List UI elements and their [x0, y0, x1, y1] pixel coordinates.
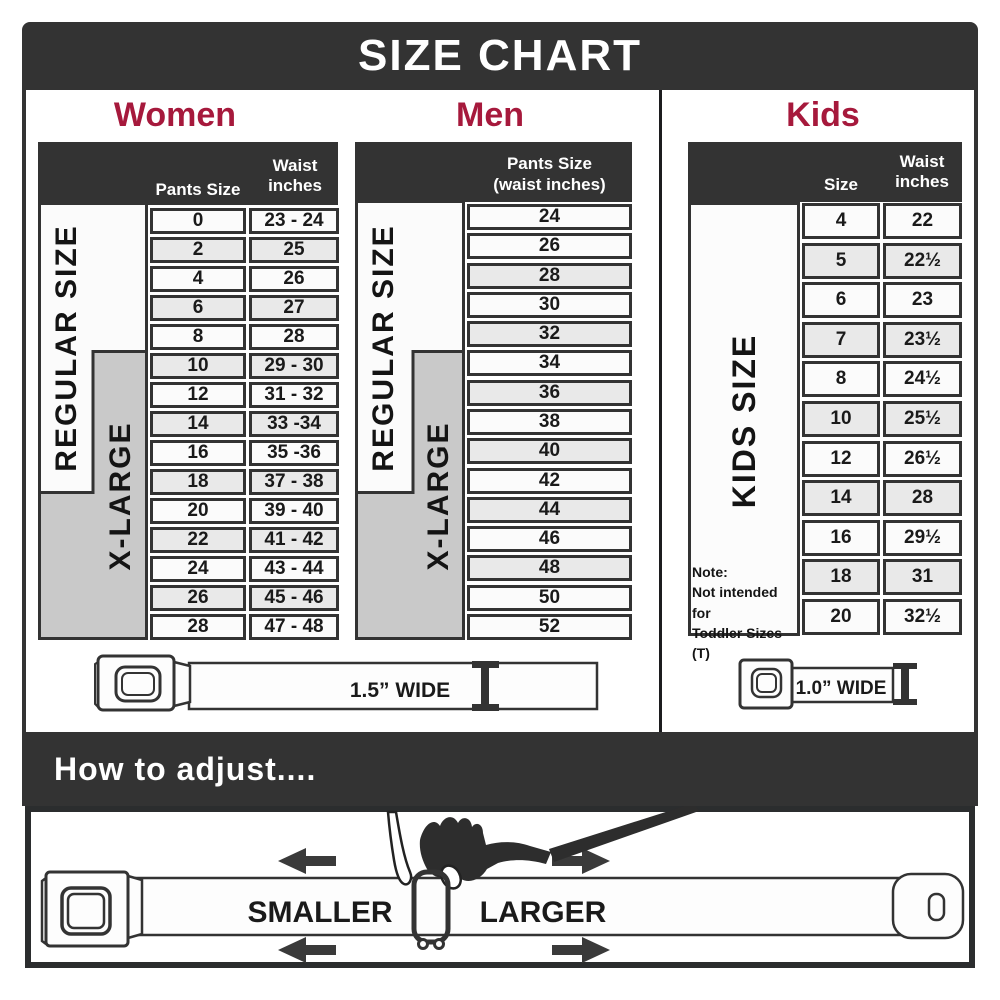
- women-col2-header: Waist inches: [252, 156, 338, 197]
- waist-cell: 23: [883, 282, 962, 318]
- kids-size-table: Size Waist inches KIDS SIZE Note: Not in…: [688, 142, 962, 642]
- kids-width-ibeam-icon: [893, 663, 917, 705]
- table-row: 1226½: [802, 441, 962, 477]
- pants-size-cell: 52: [467, 614, 632, 640]
- table-row: 2032½: [802, 599, 962, 635]
- pants-size-cell: 28: [467, 263, 632, 289]
- waist-cell: 24½: [883, 361, 962, 397]
- table-row: 1635 -36: [150, 440, 339, 466]
- smaller-arrow-bottom-icon: [278, 937, 336, 963]
- pants-size-cell: 50: [467, 585, 632, 611]
- table-row: 1837 - 38: [150, 469, 339, 495]
- table-row: 50: [467, 585, 632, 611]
- table-row: 24: [467, 204, 632, 230]
- kids-heading: Kids: [708, 96, 938, 135]
- waist-cell: 25: [249, 237, 339, 263]
- table-row: 46: [467, 526, 632, 552]
- table-row: 52: [467, 614, 632, 640]
- size-cell: 8: [802, 361, 880, 397]
- waist-cell: 35 -36: [249, 440, 339, 466]
- pants-size-cell: 28: [150, 614, 246, 640]
- kids-belt-graphic: 1.0” WIDE: [740, 660, 917, 708]
- table-row: 38: [467, 409, 632, 435]
- pants-size-cell: 6: [150, 295, 246, 321]
- table-row: 824½: [802, 361, 962, 397]
- table-row: 1433 -34: [150, 411, 339, 437]
- table-row: 1629½: [802, 520, 962, 556]
- waist-cell: 29 - 30: [249, 353, 339, 379]
- table-row: 28: [467, 263, 632, 289]
- pants-size-cell: 44: [467, 497, 632, 523]
- pants-size-cell: 20: [150, 498, 246, 524]
- size-cell: 14: [802, 480, 880, 516]
- adjust-illustration: SMALLER LARGER: [25, 806, 975, 968]
- table-row: 1025½: [802, 401, 962, 437]
- frame-right-border: [974, 90, 978, 732]
- table-row: 48: [467, 555, 632, 581]
- size-cell: 18: [802, 559, 880, 595]
- men-size-table: Pants Size (waist inches) REGULAR SIZE X…: [355, 142, 632, 642]
- table-row: 26: [467, 233, 632, 259]
- pants-size-cell: 30: [467, 292, 632, 318]
- pants-size-cell: 34: [467, 350, 632, 376]
- waist-cell: 23 - 24: [249, 208, 339, 234]
- table-row: 828: [150, 324, 339, 350]
- waist-cell: 28: [883, 480, 962, 516]
- waist-cell: 26½: [883, 441, 962, 477]
- table-row: 2241 - 42: [150, 527, 339, 553]
- pants-size-cell: 8: [150, 324, 246, 350]
- waist-cell: 39 - 40: [249, 498, 339, 524]
- how-to-adjust-heading: How to adjust....: [54, 751, 316, 788]
- title-bar: SIZE CHART: [22, 22, 978, 90]
- pants-size-cell: 42: [467, 468, 632, 494]
- men-header-line2: (waist inches): [467, 175, 632, 195]
- women-heading: Women: [60, 96, 290, 135]
- table-row: 1428: [802, 480, 962, 516]
- table-row: 36: [467, 380, 632, 406]
- belt-tail-slot: [929, 894, 944, 920]
- pants-size-cell: 48: [467, 555, 632, 581]
- waist-cell: 22½: [883, 243, 962, 279]
- smaller-arrow-top-icon: [278, 848, 336, 874]
- size-cell: 16: [802, 520, 880, 556]
- larger-label: LARGER: [480, 896, 607, 929]
- pants-size-cell: 18: [150, 469, 246, 495]
- pants-size-cell: 38: [467, 409, 632, 435]
- waist-cell: 31 - 32: [249, 382, 339, 408]
- table-row: 34: [467, 350, 632, 376]
- waist-cell: 33 -34: [249, 411, 339, 437]
- kids-section-divider: [659, 90, 662, 732]
- adjust-buckle-icon: [42, 872, 142, 946]
- women-size-table: Pants Size Waist inches REGULAR SIZE X-L…: [38, 142, 338, 642]
- note-line2: Not intended for: [692, 582, 800, 623]
- women-col1-header: Pants Size: [150, 180, 246, 200]
- pants-size-cell: 22: [150, 527, 246, 553]
- table-row: 44: [467, 497, 632, 523]
- waist-cell: 27: [249, 295, 339, 321]
- size-chart-poster: SIZE CHART Women Men Kids Pants Size Wai…: [0, 0, 1000, 1000]
- waist-cell: 37 - 38: [249, 469, 339, 495]
- waist-cell: 47 - 48: [249, 614, 339, 640]
- pants-size-cell: 26: [467, 233, 632, 259]
- table-row: 426: [150, 266, 339, 292]
- table-row: 623: [802, 282, 962, 318]
- size-cell: 5: [802, 243, 880, 279]
- waist-cell: 32½: [883, 599, 962, 635]
- waist-cell: 31: [883, 559, 962, 595]
- table-row: 2847 - 48: [150, 614, 339, 640]
- size-cell: 4: [802, 203, 880, 239]
- waist-cell: 22: [883, 203, 962, 239]
- size-cell: 7: [802, 322, 880, 358]
- table-row: 1831: [802, 559, 962, 595]
- men-regular-size-label: REGULAR SIZE: [368, 198, 400, 498]
- kids-rows: 422522½623723½824½1025½1226½14281629½183…: [802, 203, 962, 635]
- men-rows: 242628303234363840424446485052: [467, 204, 632, 640]
- pants-size-cell: 2: [150, 237, 246, 263]
- size-cell: 20: [802, 599, 880, 635]
- note-line1: Note:: [692, 562, 800, 582]
- women-xlarge-label: X-LARGE: [105, 346, 137, 646]
- pants-size-cell: 24: [150, 556, 246, 582]
- waist-cell: 29½: [883, 520, 962, 556]
- table-row: 1029 - 30: [150, 353, 339, 379]
- table-row: 023 - 24: [150, 208, 339, 234]
- pants-size-cell: 4: [150, 266, 246, 292]
- pants-size-cell: 24: [467, 204, 632, 230]
- men-header-line1: Pants Size: [467, 154, 632, 174]
- table-row: 40: [467, 438, 632, 464]
- waist-cell: 28: [249, 324, 339, 350]
- table-row: 422: [802, 203, 962, 239]
- table-row: 2443 - 44: [150, 556, 339, 582]
- pants-size-cell: 0: [150, 208, 246, 234]
- table-row: 627: [150, 295, 339, 321]
- pants-size-cell: 16: [150, 440, 246, 466]
- waist-cell: 23½: [883, 322, 962, 358]
- table-row: 225: [150, 237, 339, 263]
- size-cell: 6: [802, 282, 880, 318]
- waist-cell: 43 - 44: [249, 556, 339, 582]
- women-rows: 023 - 242254266278281029 - 301231 - 3214…: [150, 208, 339, 640]
- table-row: 522½: [802, 243, 962, 279]
- how-to-adjust-bar: How to adjust....: [22, 732, 978, 806]
- pants-size-cell: 12: [150, 382, 246, 408]
- table-row: 42: [467, 468, 632, 494]
- larger-arrow-bottom-icon: [552, 937, 610, 963]
- kids-col1-header: Size: [802, 175, 880, 195]
- waist-cell: 25½: [883, 401, 962, 437]
- pants-size-cell: 46: [467, 526, 632, 552]
- pants-size-cell: 26: [150, 585, 246, 611]
- kids-col2-header: Waist inches: [882, 152, 962, 193]
- pants-size-cell: 14: [150, 411, 246, 437]
- pants-size-cell: 40: [467, 438, 632, 464]
- table-row: 30: [467, 292, 632, 318]
- page-title: SIZE CHART: [358, 31, 642, 81]
- size-cell: 10: [802, 401, 880, 437]
- waist-cell: 41 - 42: [249, 527, 339, 553]
- pants-size-cell: 36: [467, 380, 632, 406]
- kids-size-vertical-label: KIDS SIZE: [728, 271, 760, 571]
- size-cell: 12: [802, 441, 880, 477]
- smaller-label: SMALLER: [248, 896, 393, 929]
- men-heading: Men: [375, 96, 605, 135]
- table-row: 723½: [802, 322, 962, 358]
- waist-cell: 45 - 46: [249, 585, 339, 611]
- table-row: 2039 - 40: [150, 498, 339, 524]
- belt-width-illustrations: 1.5” WIDE 1.0” WIDE: [22, 645, 978, 740]
- women-regular-size-label: REGULAR SIZE: [51, 198, 83, 498]
- frame-left-border: [22, 90, 26, 732]
- waist-cell: 26: [249, 266, 339, 292]
- adult-belt-width-label: 1.5” WIDE: [350, 679, 450, 702]
- adult-belt-graphic: 1.5” WIDE: [95, 656, 597, 711]
- men-xlarge-label: X-LARGE: [423, 346, 455, 646]
- kids-note: Note: Not intended for Toddler Sizes (T): [692, 562, 800, 663]
- table-row: 2645 - 46: [150, 585, 339, 611]
- kids-belt-width-label: 1.0” WIDE: [796, 678, 887, 699]
- pants-size-cell: 10: [150, 353, 246, 379]
- note-line3: Toddler Sizes (T): [692, 623, 800, 664]
- table-row: 32: [467, 321, 632, 347]
- table-row: 1231 - 32: [150, 382, 339, 408]
- pants-size-cell: 32: [467, 321, 632, 347]
